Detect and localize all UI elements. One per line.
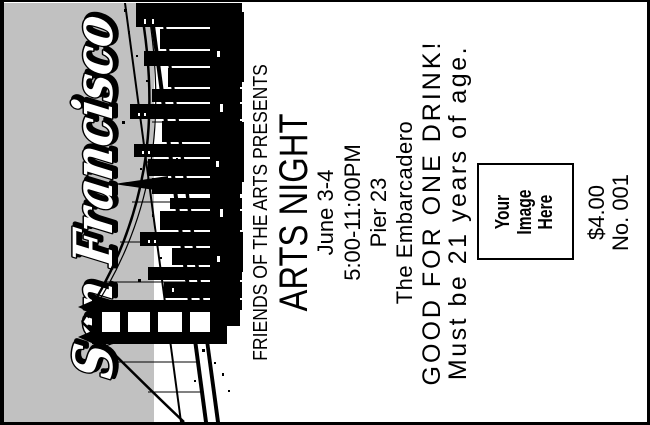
drink-perk-line: GOOD FOR ONE DRINK! bbox=[420, 3, 445, 422]
image-placeholder-line-1: Your bbox=[493, 189, 514, 234]
image-placeholder-box: Your Image Here bbox=[477, 164, 574, 261]
city-buildings bbox=[114, 3, 244, 326]
presenter-line: FRIENDS OF THE ARTS PRESENTS bbox=[251, 28, 271, 397]
event-date: June 3-4 bbox=[315, 3, 337, 422]
skyline-bridge-art bbox=[52, 3, 244, 422]
age-restriction-line: Must be 21 years of age. bbox=[446, 3, 471, 422]
event-time: 5:00-11:00PM bbox=[342, 3, 364, 422]
venue-name: Pier 23 bbox=[368, 3, 390, 422]
ticket-serial-number: No. 001 bbox=[610, 3, 632, 422]
venue-location: The Embarcadero bbox=[394, 3, 416, 422]
image-placeholder-line-3: Here bbox=[536, 189, 557, 234]
ticket-price: $4.00 bbox=[586, 3, 608, 422]
image-placeholder-label: Your Image Here bbox=[493, 189, 557, 234]
event-ticket: San Francisco San Francisco bbox=[0, 0, 650, 425]
event-title: ARTS NIGHT bbox=[274, 41, 314, 385]
ticket-logical-layout: San Francisco San Francisco bbox=[4, 3, 647, 422]
ticket-proof-stage: San Francisco San Francisco bbox=[0, 0, 650, 425]
image-placeholder-line-2: Image bbox=[515, 189, 536, 234]
